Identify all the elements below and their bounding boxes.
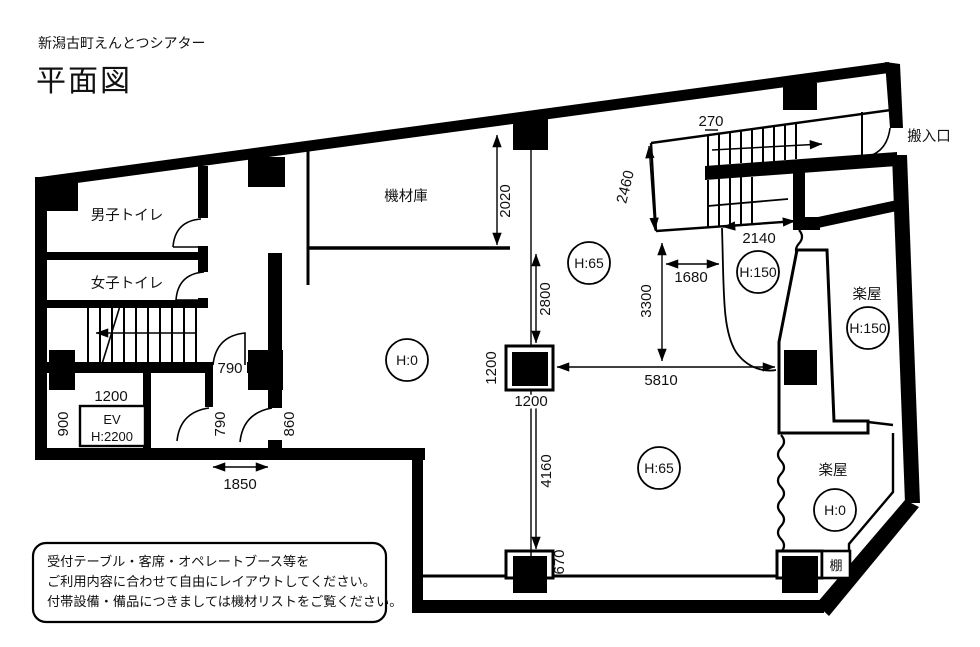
- column: [782, 556, 818, 593]
- height-badge-hall-rear: H:65: [638, 447, 680, 489]
- dim-790-hall: 790: [217, 360, 242, 377]
- staircase-left: [88, 306, 196, 364]
- floor-plan-page: H:0 H:65 H:150 H:65 H:150 H:0 男子トイレ 女子トイ…: [0, 0, 980, 647]
- height-badge-stage-left: H:150: [737, 251, 779, 293]
- column: [784, 350, 817, 385]
- dim-900: 900: [55, 411, 72, 436]
- door-arc: [240, 408, 272, 442]
- door-arc: [177, 408, 209, 441]
- dim-2020: 2020: [497, 184, 514, 217]
- svg-text:H:0: H:0: [824, 502, 846, 518]
- height-badge-dressing-lower: H:0: [814, 489, 856, 531]
- dim-1680: 1680: [674, 269, 707, 286]
- curtain-wavy-long: [778, 435, 784, 552]
- svg-text:H:65: H:65: [644, 460, 674, 476]
- building-title: 新潟古町えんとつシアター: [38, 35, 205, 51]
- dim-270: 270: [698, 113, 723, 130]
- note-box: 受付テーブル・客席・オペレートブース等を ご利用内容に合わせて自由にレイアウトし…: [33, 543, 402, 622]
- dim-860: 860: [281, 411, 298, 436]
- column: [783, 83, 817, 110]
- dim-2140-line: [723, 221, 795, 227]
- height-badge-dressing-upper: H:150: [847, 307, 889, 349]
- elevator-label: EV: [103, 412, 121, 427]
- dim-2460: 2460: [613, 169, 638, 205]
- room-label-womens-toilet: 女子トイレ: [91, 274, 164, 292]
- drawing-title: 平面図: [36, 65, 132, 98]
- dim-2140: 2140: [742, 230, 775, 247]
- dim-3300: 3300: [638, 284, 655, 317]
- elevator-height-label: H:2200: [91, 429, 133, 444]
- room-label-equipment-storage: 機材庫: [384, 188, 428, 205]
- column: [248, 157, 285, 187]
- height-badge-mid-front: H:65: [568, 242, 610, 284]
- curved-wall: [722, 228, 776, 371]
- column: [512, 352, 548, 386]
- door-arc: [176, 272, 204, 300]
- room-label-mens-toilet: 男子トイレ: [91, 207, 164, 224]
- svg-text:H:65: H:65: [574, 255, 604, 271]
- note-line-3: 付帯設備・備品につきましては機材リストをご覧ください。: [47, 593, 402, 609]
- svg-text:H:150: H:150: [849, 320, 887, 336]
- dim-670: 670: [551, 549, 568, 574]
- floor-plan-svg: H:0 H:65 H:150 H:65 H:150 H:0 男子トイレ 女子トイ…: [0, 0, 980, 647]
- dim-4160: 4160: [538, 454, 555, 487]
- dim-1850: 1850: [223, 476, 256, 493]
- dim-1200-col-w: 1200: [483, 351, 500, 384]
- svg-text:H:150: H:150: [739, 264, 777, 280]
- column: [513, 556, 547, 593]
- title-block: 新潟古町えんとつシアター 平面図: [36, 35, 205, 98]
- door-arc: [173, 219, 201, 247]
- dim-2800: 2800: [537, 282, 554, 315]
- dim-1200-ev: 1200: [94, 388, 127, 405]
- note-line-1: 受付テーブル・客席・オペレートブース等を: [47, 553, 309, 569]
- room-label-loading-entrance: 搬入口: [907, 128, 951, 145]
- note-line-2: ご利用内容に合わせて自由にレイアウトしてください。: [47, 573, 376, 589]
- room-label-dressing-upper: 楽屋: [853, 286, 882, 303]
- dim-5810: 5810: [644, 372, 677, 389]
- svg-text:H:0: H:0: [396, 352, 418, 368]
- height-badge-hall-center: H:0: [386, 339, 428, 381]
- dim-790-ev: 790: [212, 411, 229, 436]
- room-label-shelf: 棚: [829, 558, 842, 573]
- room-label-dressing-lower: 楽屋: [819, 462, 848, 479]
- column: [513, 117, 548, 150]
- dim-1200-col-d: 1200: [514, 393, 547, 410]
- interior-walls: [47, 152, 897, 450]
